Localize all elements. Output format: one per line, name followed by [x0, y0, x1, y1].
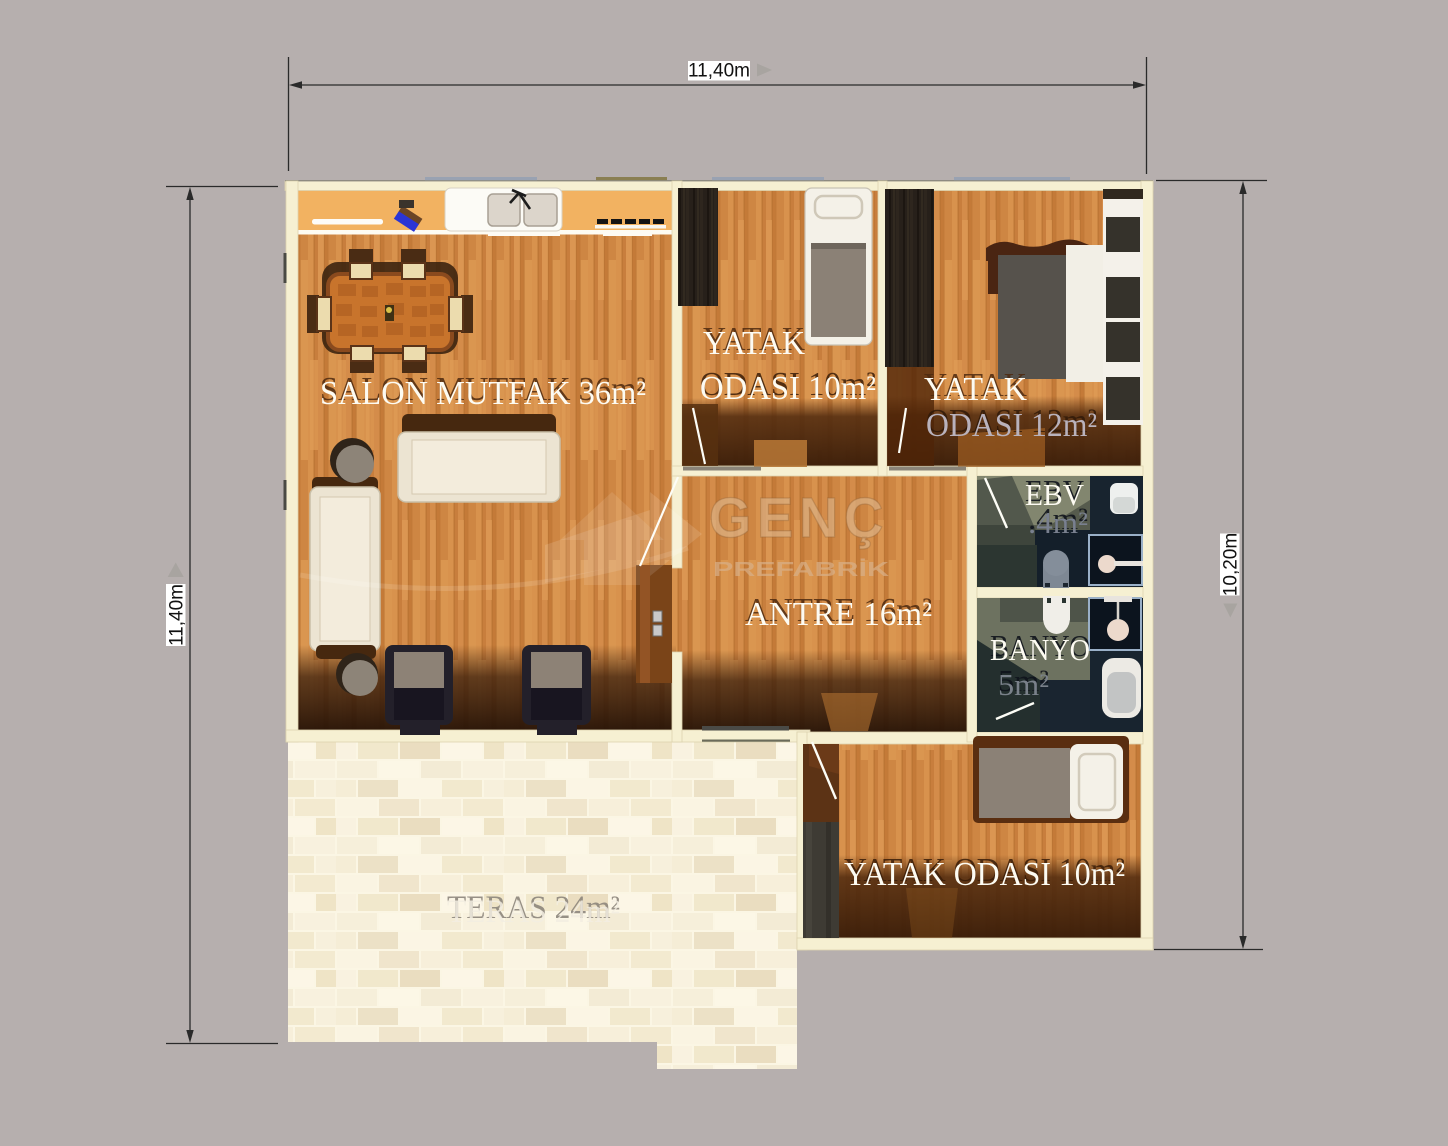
svg-text:PREFABRİK: PREFABRİK: [713, 558, 890, 581]
svg-text:YATAK: YATAK: [703, 325, 805, 362]
svg-text:TERAS 24m²: TERAS 24m²: [447, 894, 620, 930]
svg-text:ODASI 12m²: ODASI 12m²: [926, 407, 1097, 444]
svg-text:YATAK ODASI 10m²: YATAK ODASI 10m²: [844, 856, 1125, 893]
svg-text:11,40m: 11,40m: [167, 584, 188, 646]
svg-text:SALON MUTFAK 36m²: SALON MUTFAK 36m²: [320, 375, 646, 412]
svg-text:ANTRE 16m²: ANTRE 16m²: [745, 596, 932, 633]
svg-text:ODASI 10m²: ODASI 10m²: [700, 370, 876, 407]
svg-text:10,20m: 10,20m: [1221, 533, 1242, 596]
svg-text:5m²: 5m²: [998, 667, 1049, 702]
svg-text:11,40m: 11,40m: [688, 61, 750, 82]
svg-text:BANYO: BANYO: [990, 632, 1090, 667]
svg-text:GENÇ: GENÇ: [709, 486, 889, 550]
svg-text:.4m²: .4m²: [1028, 505, 1088, 540]
